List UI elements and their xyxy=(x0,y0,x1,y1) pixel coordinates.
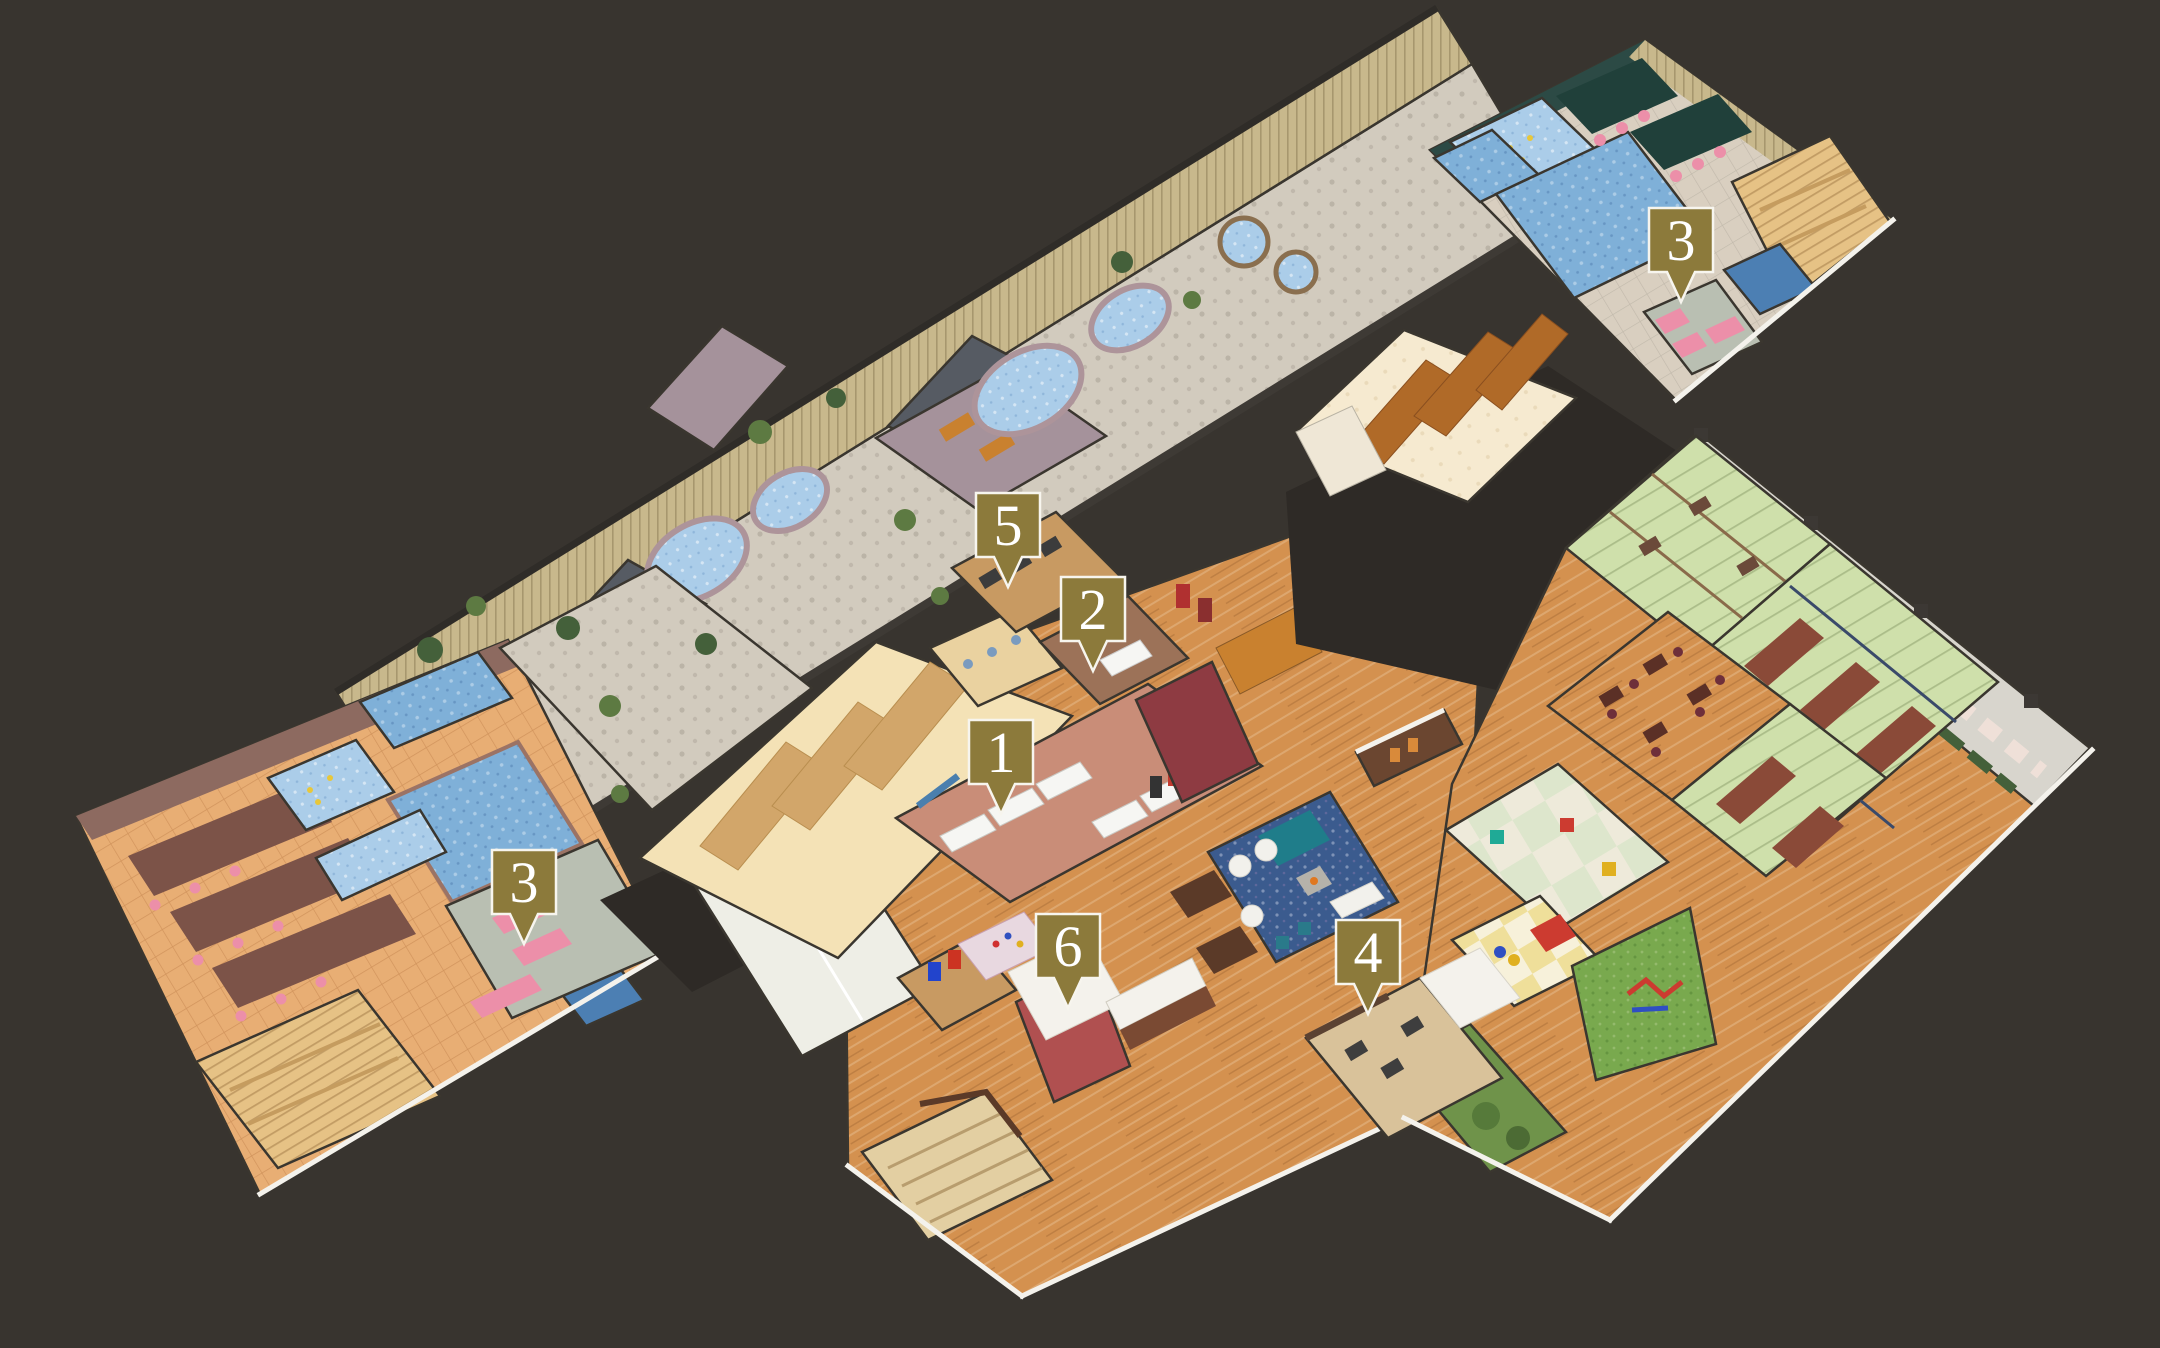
bath-stool xyxy=(276,994,287,1005)
bath-stool xyxy=(1670,170,1682,182)
menu-panel xyxy=(1408,738,1418,752)
shrub-icon xyxy=(1111,251,1133,273)
powder-stool xyxy=(963,659,973,669)
shrub-icon xyxy=(556,616,580,640)
noren-banner xyxy=(1198,598,1212,622)
lounge-armchair xyxy=(1229,855,1251,877)
floor-guide-stage: 1233456 xyxy=(0,0,2160,1348)
marker-number: 6 xyxy=(1054,914,1083,979)
spa-floor-map: 1233456 xyxy=(0,0,2160,1348)
marker-number: 1 xyxy=(987,720,1016,785)
garden-post xyxy=(2024,694,2038,708)
lounge-armchair xyxy=(1255,839,1277,861)
dining-chair xyxy=(1651,747,1661,757)
yuzu-icon xyxy=(327,775,333,781)
marker-number: 4 xyxy=(1354,920,1383,985)
pouf xyxy=(1276,936,1289,949)
dining-chair xyxy=(1629,679,1639,689)
shrub-icon xyxy=(417,637,443,663)
vending-machine xyxy=(1150,776,1162,798)
bath-stool xyxy=(150,900,161,911)
bath-stool xyxy=(190,883,201,894)
yuzu-icon xyxy=(1527,135,1533,141)
menu-panel xyxy=(1390,748,1400,762)
lounge-armchair xyxy=(1241,905,1263,927)
play-cushion xyxy=(1490,830,1504,844)
bath-stool xyxy=(193,955,204,966)
climbing-frame xyxy=(1632,1008,1668,1010)
noren-banner xyxy=(1176,584,1190,608)
dining-chair xyxy=(1673,647,1683,657)
arcade-machine xyxy=(928,962,941,981)
bath-stool xyxy=(233,938,244,949)
bath-stool xyxy=(236,1011,247,1022)
bath-stool xyxy=(1692,158,1704,170)
bath-stool xyxy=(273,921,284,932)
sweets-icon xyxy=(993,941,1000,948)
bush-icon xyxy=(1506,1126,1530,1150)
sweets-icon xyxy=(1017,941,1024,948)
powder-stool xyxy=(987,647,997,657)
shrub-icon xyxy=(894,509,916,531)
dining-chair xyxy=(1607,709,1617,719)
pouf xyxy=(1298,922,1311,935)
play-cushion xyxy=(1602,862,1616,876)
yuzu-icon xyxy=(315,799,321,805)
dining-chair xyxy=(1695,707,1705,717)
ball-pit-icon xyxy=(1508,954,1520,966)
bath-stool xyxy=(316,977,327,988)
shrub-icon xyxy=(466,596,486,616)
fire-icon xyxy=(1310,877,1318,885)
round-tub-bath xyxy=(1276,252,1316,292)
marker-number: 3 xyxy=(510,850,539,915)
powder-stool xyxy=(1011,635,1021,645)
bath-stool xyxy=(1638,110,1650,122)
shrub-icon xyxy=(695,633,717,655)
round-tub-bath xyxy=(1220,218,1268,266)
bath-stool xyxy=(1714,146,1726,158)
planter-icon xyxy=(931,587,949,605)
shrub-icon xyxy=(599,695,621,717)
bush-icon xyxy=(1472,1102,1500,1130)
play-cushion xyxy=(1560,818,1574,832)
bath-stool xyxy=(230,866,241,877)
shrub-icon xyxy=(1183,291,1201,309)
ball-pit-icon xyxy=(1494,946,1506,958)
marker-number: 2 xyxy=(1079,577,1108,642)
marker-number: 3 xyxy=(1667,208,1696,273)
sweets-icon xyxy=(1005,933,1012,940)
marker-number: 5 xyxy=(994,493,1023,558)
bath-stool xyxy=(1594,134,1606,146)
bath-stool xyxy=(1616,122,1628,134)
arcade-machine xyxy=(948,950,961,969)
yuzu-icon xyxy=(307,787,313,793)
shrub-icon xyxy=(748,420,772,444)
dining-chair xyxy=(1715,675,1725,685)
planter-icon xyxy=(611,785,629,803)
shrub-icon xyxy=(826,388,846,408)
